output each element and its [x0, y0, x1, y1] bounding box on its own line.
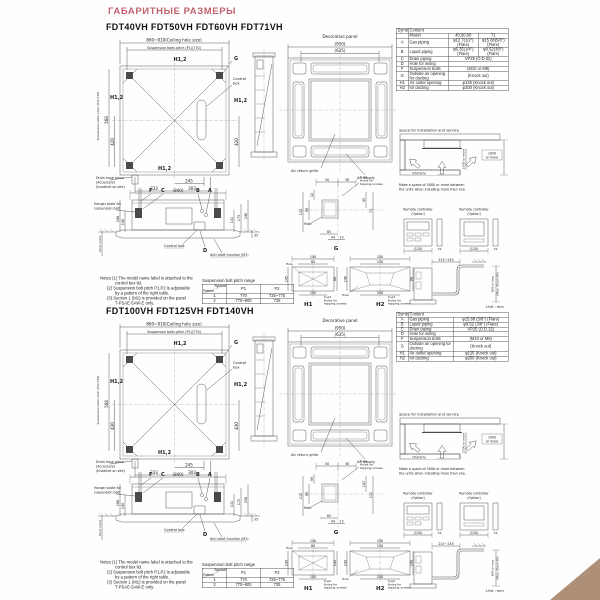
- note-line: T-PSAE-5AW-E only.: [100, 301, 200, 306]
- dim: 13: [339, 236, 343, 240]
- panel-drawing: Decorative panel (950) (635): [243, 32, 399, 186]
- dim: 13: [339, 520, 343, 524]
- label-unit-mm: Unit : mm: [486, 589, 504, 593]
- table-cell: Outside air opening for ducting: [408, 342, 453, 351]
- detail-g: 50 38 5-φ4 Holes for tapping screws 132 …: [298, 459, 384, 536]
- label-remote: (Option): [467, 496, 481, 500]
- table-cell: for ducting: [408, 356, 453, 361]
- drain-lift-dims: 215~245 850 or less (Max. Drain lift): [432, 258, 500, 302]
- dim-right: 430: [234, 422, 239, 430]
- table-cell: A: [396, 38, 408, 47]
- table-cell: 770~800: [227, 299, 261, 304]
- table-row: AGas pipingφ12.7(1/2") (Flare)φ15.88(5/8…: [396, 38, 508, 47]
- table-cell: G: [396, 342, 408, 351]
- dim-bolt-pitch-left: Suspension bolts pitch (P1)(770): [96, 376, 100, 425]
- label-hole: Hole: [286, 262, 293, 266]
- dim-drain-lift: 850 or less: [491, 559, 495, 576]
- dim-50-or-more: 50 or more: [98, 236, 102, 253]
- topview-dim-lines: 860~910(Ceiling hole size) Suspension bo…: [120, 322, 229, 354]
- dim: 44: [331, 236, 335, 240]
- table-cell: Symbol Pattern: [202, 568, 227, 578]
- sv-left-labels: Hanger plate for suspension bolt 188 140…: [94, 200, 135, 256]
- label-control-box: box: [233, 366, 240, 370]
- dim: 85: [327, 514, 331, 518]
- page-corner-decoration: [550, 558, 600, 600]
- label-anti-draft: Anti draft function (M1): [210, 537, 249, 541]
- remote-controller-display: Remote controller (Option) (120) 19: [459, 208, 498, 255]
- table-row: GOutside air opening for ducting(Knock o…: [396, 72, 508, 81]
- label-decorative-panel: Decorative panel: [323, 34, 358, 39]
- dim: 240: [377, 255, 383, 259]
- dim-height: 246: [244, 213, 248, 219]
- pitch-table-wrap: Suspension bolt pitch range Symbol Patte…: [202, 278, 294, 304]
- dim-50-or-more: 50 or more: [98, 520, 102, 537]
- table-cell-pattern: Pattern: [203, 574, 214, 578]
- topview-body: [112, 62, 238, 180]
- dim-inner: 172: [237, 499, 241, 505]
- table-row: H2for ductingφ200 (Knock out): [396, 356, 508, 361]
- section-title: FDT40VH FDT50VH FDT60VH FDT71VH: [106, 22, 283, 32]
- label-decorative-panel: Decorative panel: [323, 318, 358, 323]
- dim: 132: [299, 493, 303, 499]
- label-detail-h1: H1: [304, 586, 313, 592]
- label-h12-left: H1,2: [110, 379, 124, 385]
- drain-lift-dims: 215~245 850 or less (Max. Drain lift): [432, 542, 500, 586]
- label-tapping-holes: tapping screws: [388, 302, 411, 306]
- dim-188: 188: [116, 216, 120, 222]
- dim: 132: [299, 209, 303, 215]
- dim-140: 140: [121, 219, 125, 225]
- sv-right-dims: 131 173 246 35: [230, 200, 258, 238]
- dim-635: (635): [334, 332, 345, 337]
- table-cell: Gas piping: [408, 38, 448, 47]
- section-fdt40-71: FDT40VH FDT50VH FDT60VH FDT71VH 860~910(…: [0, 22, 600, 308]
- dim-120: (120): [470, 531, 479, 535]
- table-cell-pattern: Pattern: [203, 290, 214, 294]
- dim-bolt-pitch: Suspension bolts pitch (P1)(770): [147, 330, 201, 334]
- sideview-drawing: (840) F C B A D: [94, 470, 264, 546]
- dim-19: 19: [438, 247, 442, 251]
- label-drain-hose: Drain hose piece: [96, 176, 124, 180]
- label-hole: Hole: [304, 222, 311, 226]
- dim: 140: [310, 539, 316, 543]
- dim-215-245: 215~245: [438, 258, 453, 262]
- label-drain-hose: (Accessory): [96, 181, 115, 185]
- table-cell: 2: [202, 299, 227, 304]
- dim-ceiling-hole: 860~910(Ceiling hole size): [146, 38, 202, 43]
- dim: 38: [345, 462, 349, 466]
- dim: 200: [377, 291, 383, 295]
- dim: 88: [333, 277, 337, 281]
- dim-950: (950): [334, 326, 345, 331]
- dim: 50: [325, 178, 329, 182]
- sv-right-dims: 131 172 298 35: [230, 484, 258, 522]
- dim-568: 568: [104, 400, 109, 408]
- label-remote: Remote controller: [459, 492, 489, 496]
- catalog-page: ГАБАРИТНЫЕ РАЗМЕРЫ FDT40VH FDT50VH FDT60…: [0, 0, 600, 600]
- dim-19: 19: [494, 531, 498, 535]
- table-cell: φ200 (Knock out): [448, 86, 508, 91]
- dim-ceiling-hole: 860~910(Ceiling hole size): [146, 322, 202, 327]
- table-row: 2770~800725: [202, 583, 294, 588]
- dim: 112: [369, 492, 373, 498]
- dim-drain-lift: (Max. Drain lift): [496, 272, 500, 295]
- unit-side-profile: [251, 333, 277, 446]
- dim-vertical-clearance: 2500 or more: [462, 433, 466, 454]
- dim: 84: [311, 260, 315, 264]
- table-cell: φ15.88(5/8") (Flare): [478, 38, 508, 47]
- page-header: ГАБАРИТНЫЕ РАЗМЕРЫ: [108, 6, 236, 17]
- label-c: C: [161, 472, 165, 478]
- sv-body: [98, 188, 260, 238]
- dim-vertical-clearance: 2500 or more: [462, 149, 466, 170]
- table-cell: 770~800: [227, 583, 261, 588]
- table-row: Symbol Pattern P1 P2: [202, 568, 294, 578]
- table-cell: Outside air opening for ducting: [408, 72, 448, 81]
- table-cell: Symbol: [396, 28, 408, 33]
- table-cell: for ducting: [408, 86, 448, 91]
- table-cell: φ9.52(3/8") (Flare): [478, 47, 508, 56]
- install-space-drawing: Space for installation and service Obsta…: [398, 410, 518, 478]
- topview-side-dims: Suspension bolts pitch (P1)(770) 568 420…: [96, 69, 239, 167]
- label-space-title: Space for installation and service: [399, 413, 460, 417]
- dim-19: 19: [494, 247, 498, 251]
- table-row: BLiquid pipingφ6.35(1/4") (Flare)φ9.52(3…: [396, 47, 508, 56]
- label-remote: (Option): [467, 212, 481, 216]
- table-cell: φ12.7(1/2") (Flare): [448, 38, 478, 47]
- label-hole: Hole: [342, 293, 349, 297]
- dim-840: (840): [172, 472, 183, 477]
- dim: 84: [311, 544, 315, 548]
- dim: 60: [305, 492, 309, 496]
- dim-635: (635): [334, 48, 345, 53]
- topview-drawing: 860~910(Ceiling hole size) Suspension bo…: [96, 36, 250, 196]
- dim: 147: [362, 481, 366, 487]
- dim-35: 35: [254, 518, 258, 522]
- panel-face: [279, 334, 397, 456]
- label-hanger-plate: Hanger plate for: [94, 486, 122, 490]
- dim-188: 188: [116, 500, 120, 506]
- topview-body: [112, 346, 238, 464]
- table-cell: B: [396, 47, 408, 56]
- table-cell-symbol: Symbol: [214, 569, 226, 573]
- label-a: A: [208, 472, 212, 478]
- dim: 240: [377, 539, 383, 543]
- notes: Notes (1) The model name label is attach…: [100, 276, 200, 306]
- dim-side-clearance: or more: [486, 156, 499, 160]
- dim: 200: [377, 575, 383, 579]
- table-cell-symbol: Symbol: [214, 285, 226, 289]
- table-cell: (Knock out): [453, 342, 508, 351]
- dim: 73: [369, 209, 373, 213]
- label-drain-hose: Drain hose piece: [96, 460, 124, 464]
- dim: 44: [331, 520, 335, 524]
- label-h12-bottom: H1,2: [158, 166, 172, 172]
- pitch-table: Symbol Pattern P1 P2 1770725~7752770~800…: [202, 568, 294, 588]
- dim: 100: [310, 291, 316, 295]
- dim: 130: [377, 544, 383, 548]
- drain-lift-unit: [410, 259, 486, 304]
- detail-h1: 140 84 140 140 100 Hole 6-φ4 Holes for t…: [284, 538, 347, 592]
- dim-19: 19: [438, 531, 442, 535]
- dim: 130: [377, 260, 383, 264]
- dim: 140: [343, 560, 347, 566]
- install-space-dims: 2500 or more 1000 or more: [462, 424, 509, 459]
- dim: 60: [305, 208, 309, 212]
- table-cell: H2: [396, 86, 408, 91]
- notes: Notes (1) The model name label is attach…: [100, 560, 200, 590]
- dim-inner: 173: [237, 215, 241, 221]
- sv-body: [98, 472, 260, 522]
- pitch-table-wrap: Suspension bolt pitch range Symbol Patte…: [202, 562, 294, 588]
- table-row: 2770~800725: [202, 299, 294, 304]
- dim: 45: [362, 198, 366, 202]
- detail-h2: 240 130 88 140 200 Hole 6-φ4 Holes for t…: [342, 254, 413, 308]
- dim-131: 131: [230, 501, 234, 507]
- detail-h1: 140 84 88 145 100 Hole 6-φ4 Holes for ta…: [284, 254, 347, 308]
- label-h12-left: H1,2: [110, 95, 124, 101]
- label-c: C: [161, 188, 165, 194]
- label-d: D: [203, 248, 207, 254]
- table-cell: 2: [202, 583, 227, 588]
- dim-right: 420: [234, 138, 239, 146]
- dim-568: 568: [104, 116, 109, 124]
- detail-h2: 240 130 140 140 200 Hole 6-φ4 Holes for …: [342, 538, 413, 592]
- label-control-box: box: [233, 82, 240, 86]
- dim: 140: [343, 276, 347, 282]
- dim-side-clearance: or more: [486, 440, 499, 444]
- dim-131: 131: [230, 217, 234, 223]
- label-detail-g: G: [334, 246, 339, 252]
- dim: 140: [409, 560, 413, 566]
- install-space-drawing: Space for installation and service Obsta…: [398, 126, 518, 194]
- label-hole: Hole: [342, 577, 349, 581]
- label-d: D: [203, 532, 207, 538]
- label-h12-bottom: H1,2: [158, 450, 172, 456]
- dim: 140: [333, 560, 337, 566]
- drain-lift-drawing: 215~245 850 or less (Max. Drain lift) Un…: [402, 256, 516, 310]
- dim-left: 430: [110, 422, 115, 430]
- pitch-table-title: Suspension bolt pitch range: [202, 562, 294, 567]
- symbol-table: SymbolContentModel40,50,6071AGas pipingφ…: [396, 28, 509, 91]
- label-a: A: [208, 188, 212, 194]
- label-tapping-holes: tapping screws: [360, 466, 383, 470]
- section-title: FDT100VH FDT125VH FDT140VH: [106, 306, 254, 316]
- topview-side-dims: Suspension bolts pitch (P1)(770) 568 430…: [96, 353, 239, 451]
- pitch-table: Symbol Pattern P1 P2 1770725~7752770~800…: [202, 284, 294, 304]
- drain-lift-drawing: 215~245 850 or less (Max. Drain lift) Un…: [402, 540, 516, 594]
- label-anti-draft: Anti draft function (M1): [210, 253, 249, 257]
- table-cell: G: [396, 72, 408, 81]
- symbol-table: SymbolContentAGas pipingφ15.88 (5/8") (F…: [396, 312, 509, 361]
- dim: 140: [310, 255, 316, 259]
- note-line: T-PSAE-5AW-E only.: [100, 585, 200, 590]
- table-cell: H2: [396, 356, 408, 361]
- panel-face: [279, 50, 397, 172]
- dim: 88: [409, 277, 413, 281]
- table-cell: (Knock out): [448, 72, 508, 81]
- install-space-dims: 2500 or more 1000 or more: [462, 140, 509, 175]
- remote-controller-display: Remote controller (Option) (120) 19: [459, 492, 498, 539]
- label-hanger-plate: Hanger plate for: [94, 202, 122, 206]
- label-tapping-holes: tapping screws: [360, 182, 383, 186]
- label-g: G: [234, 56, 238, 62]
- dim-215-245: 215~245: [438, 542, 453, 546]
- dim-35: 35: [254, 234, 258, 238]
- dim-bolt-pitch: Suspension bolts pitch (P1)(770): [147, 46, 201, 50]
- label-drain-hose: (Accessory): [96, 465, 115, 469]
- label-detail-g: G: [334, 530, 339, 536]
- label-h12-top: H1,2: [173, 341, 187, 347]
- pitch-table-title: Suspension bolt pitch range: [202, 278, 294, 283]
- topview-dim-lines: 860~910(Ceiling hole size) Suspension bo…: [120, 38, 229, 70]
- table-cell: φ6.35(1/4") (Flare): [448, 47, 478, 56]
- dim-245: 245: [185, 463, 193, 468]
- label-h12-top: H1,2: [173, 57, 187, 63]
- symbol-table-wrap: SymbolContentAGas pipingφ15.88 (5/8") (F…: [396, 312, 509, 361]
- dim: 100: [310, 575, 316, 579]
- sv-left-labels: Hanger plate for suspension bolt 188 140…: [94, 484, 135, 540]
- detail-g: 50 38 5-φ4 Holes for tapping screws 132 …: [298, 175, 384, 252]
- table-row: H2for ductingφ200 (Knock out): [396, 86, 508, 91]
- dim: 145: [284, 276, 288, 282]
- label-tapping-holes: tapping screws: [324, 586, 347, 590]
- table-row: GOutside air opening for ducting(Knock o…: [396, 342, 508, 351]
- dim: 38: [345, 178, 349, 182]
- dim-140: 140: [121, 503, 125, 509]
- dim-left: 420: [110, 138, 115, 146]
- symbol-table-wrap: SymbolContentModel40,50,6071AGas pipingφ…: [396, 28, 509, 91]
- label-detail-h2: H2: [376, 586, 385, 592]
- drain-lift-unit: [410, 543, 486, 588]
- dim-drain-lift: 850 or less: [491, 275, 495, 292]
- duct-details-drawing: 50 38 5-φ4 Holes for tapping screws 132 …: [286, 456, 416, 592]
- label-f: F: [149, 472, 152, 478]
- section-fdt100-140: FDT100VH FDT125VH FDT140VH 860~910(Ceili…: [0, 306, 600, 592]
- dim: 50: [325, 462, 329, 466]
- dim-bolt-pitch-left: Suspension bolts pitch (P1)(770): [96, 92, 100, 141]
- sideview-drawing: (840) F C B A D: [94, 186, 264, 262]
- label-g: G: [234, 340, 238, 346]
- table-cell: P1: [227, 568, 261, 578]
- label-f: F: [149, 188, 152, 194]
- label-b: B: [196, 188, 200, 194]
- table-cell: φ200 (Knock out): [453, 356, 508, 361]
- label-b: B: [196, 472, 200, 478]
- table-cell: Symbol Pattern: [202, 284, 227, 294]
- dim-height: 298: [244, 497, 248, 503]
- panel-drawing: Decorative panel (950) (635): [243, 316, 399, 470]
- dim-840: (840): [172, 188, 183, 193]
- duct-details-drawing: 50 38 5-φ4 Holes for tapping screws 132 …: [286, 172, 416, 308]
- table-row: Symbol Pattern P1 P2: [202, 284, 294, 294]
- table-cell: P1: [227, 284, 261, 294]
- unit-side-profile: [251, 49, 277, 162]
- label-hole: Hole: [286, 546, 293, 550]
- dim: 99: [310, 477, 314, 481]
- dim: 32: [310, 193, 314, 197]
- dim: 85: [327, 230, 331, 234]
- label-tapping-holes: tapping screws: [388, 586, 411, 590]
- table-cell: Liquid piping: [408, 47, 448, 56]
- dim-drain-lift: (Max. Drain lift): [496, 556, 500, 579]
- topview-drawing: 860~910(Ceiling hole size) Suspension bo…: [96, 320, 250, 480]
- label-remote: Remote controller: [459, 208, 489, 212]
- label-hole: Hole: [304, 506, 311, 510]
- dim-950: (950): [334, 42, 345, 47]
- dim-245: 245: [185, 179, 193, 184]
- dim-120: (120): [470, 247, 479, 251]
- label-tapping-holes: tapping screws: [324, 302, 347, 306]
- label-space-title: Space for installation and service: [399, 129, 460, 133]
- dim: 140: [284, 560, 288, 566]
